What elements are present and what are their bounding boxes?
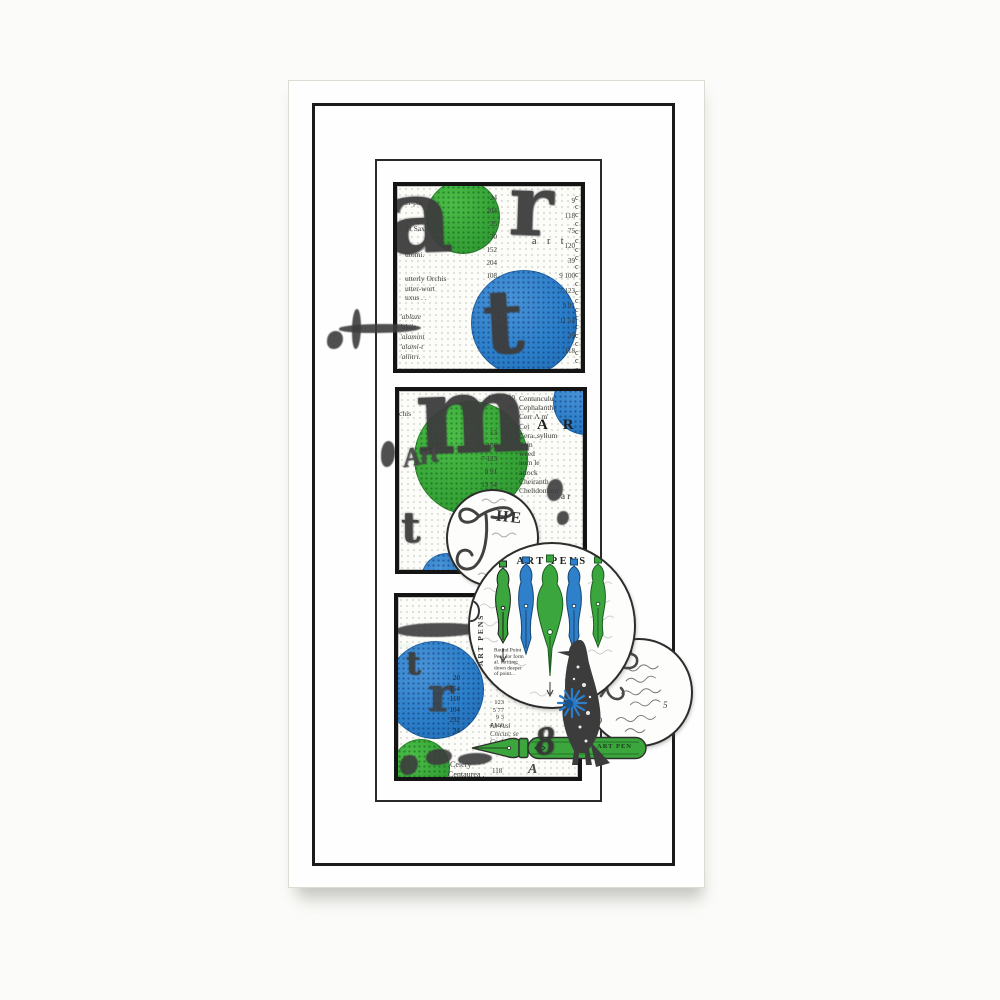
gothic-letter-t: t: [481, 277, 526, 367]
script-number-5: 5: [663, 700, 668, 710]
cursive-art-word: Art: [401, 440, 440, 472]
numbers-on-blue: 2015411010423234: [438, 673, 460, 736]
the-word-rest: HE: [495, 508, 524, 529]
tiny-word: scese: [399, 643, 412, 649]
dictionary-words-low: 'ablaze'akile'alamint'alami-t'allitri.: [400, 312, 425, 362]
word-centaurea: Centaurea .: [448, 770, 484, 779]
ink-smudge: [557, 511, 569, 525]
gothic-letter-r: r: [508, 182, 555, 249]
scan-background: er-par.'et Saxutomi. utterly Orchisutter…: [0, 0, 1000, 1000]
c-letter-column: ccccccccccccccccccccc: [575, 194, 582, 373]
flower-burst: [556, 687, 588, 719]
stamp-capitals: A R: [537, 417, 580, 434]
dictionary-word-left: chis: [399, 409, 411, 418]
number-bottom: 118: [492, 767, 502, 775]
gothic-letter-t-small: t: [406, 647, 421, 679]
gothic-letter-a: a: [393, 182, 454, 269]
dictionary-words-mid: utterly Orchisutter-wortuxus . .: [405, 274, 446, 303]
number-column-left: 242042570152204108: [471, 192, 497, 283]
greeting-card: er-par.'et Saxutomi. utterly Orchisutter…: [288, 80, 705, 888]
collage-square-1: er-par.'et Saxutomi. utterly Orchisutter…: [393, 182, 585, 373]
gothic-letter-t-small: t: [401, 507, 420, 549]
